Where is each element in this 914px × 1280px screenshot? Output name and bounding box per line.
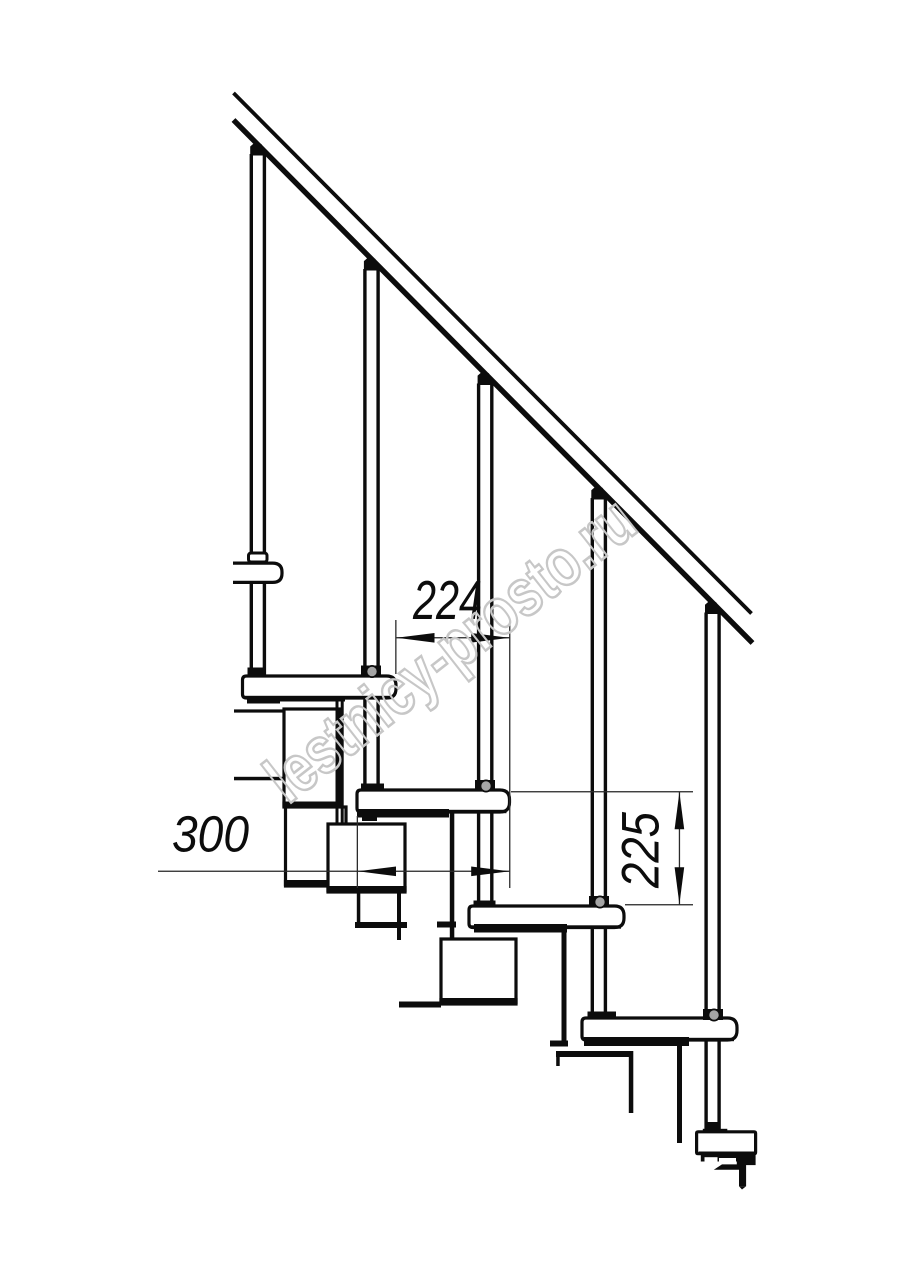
svg-text:225: 225 [612,812,671,889]
svg-text:300: 300 [172,806,249,863]
